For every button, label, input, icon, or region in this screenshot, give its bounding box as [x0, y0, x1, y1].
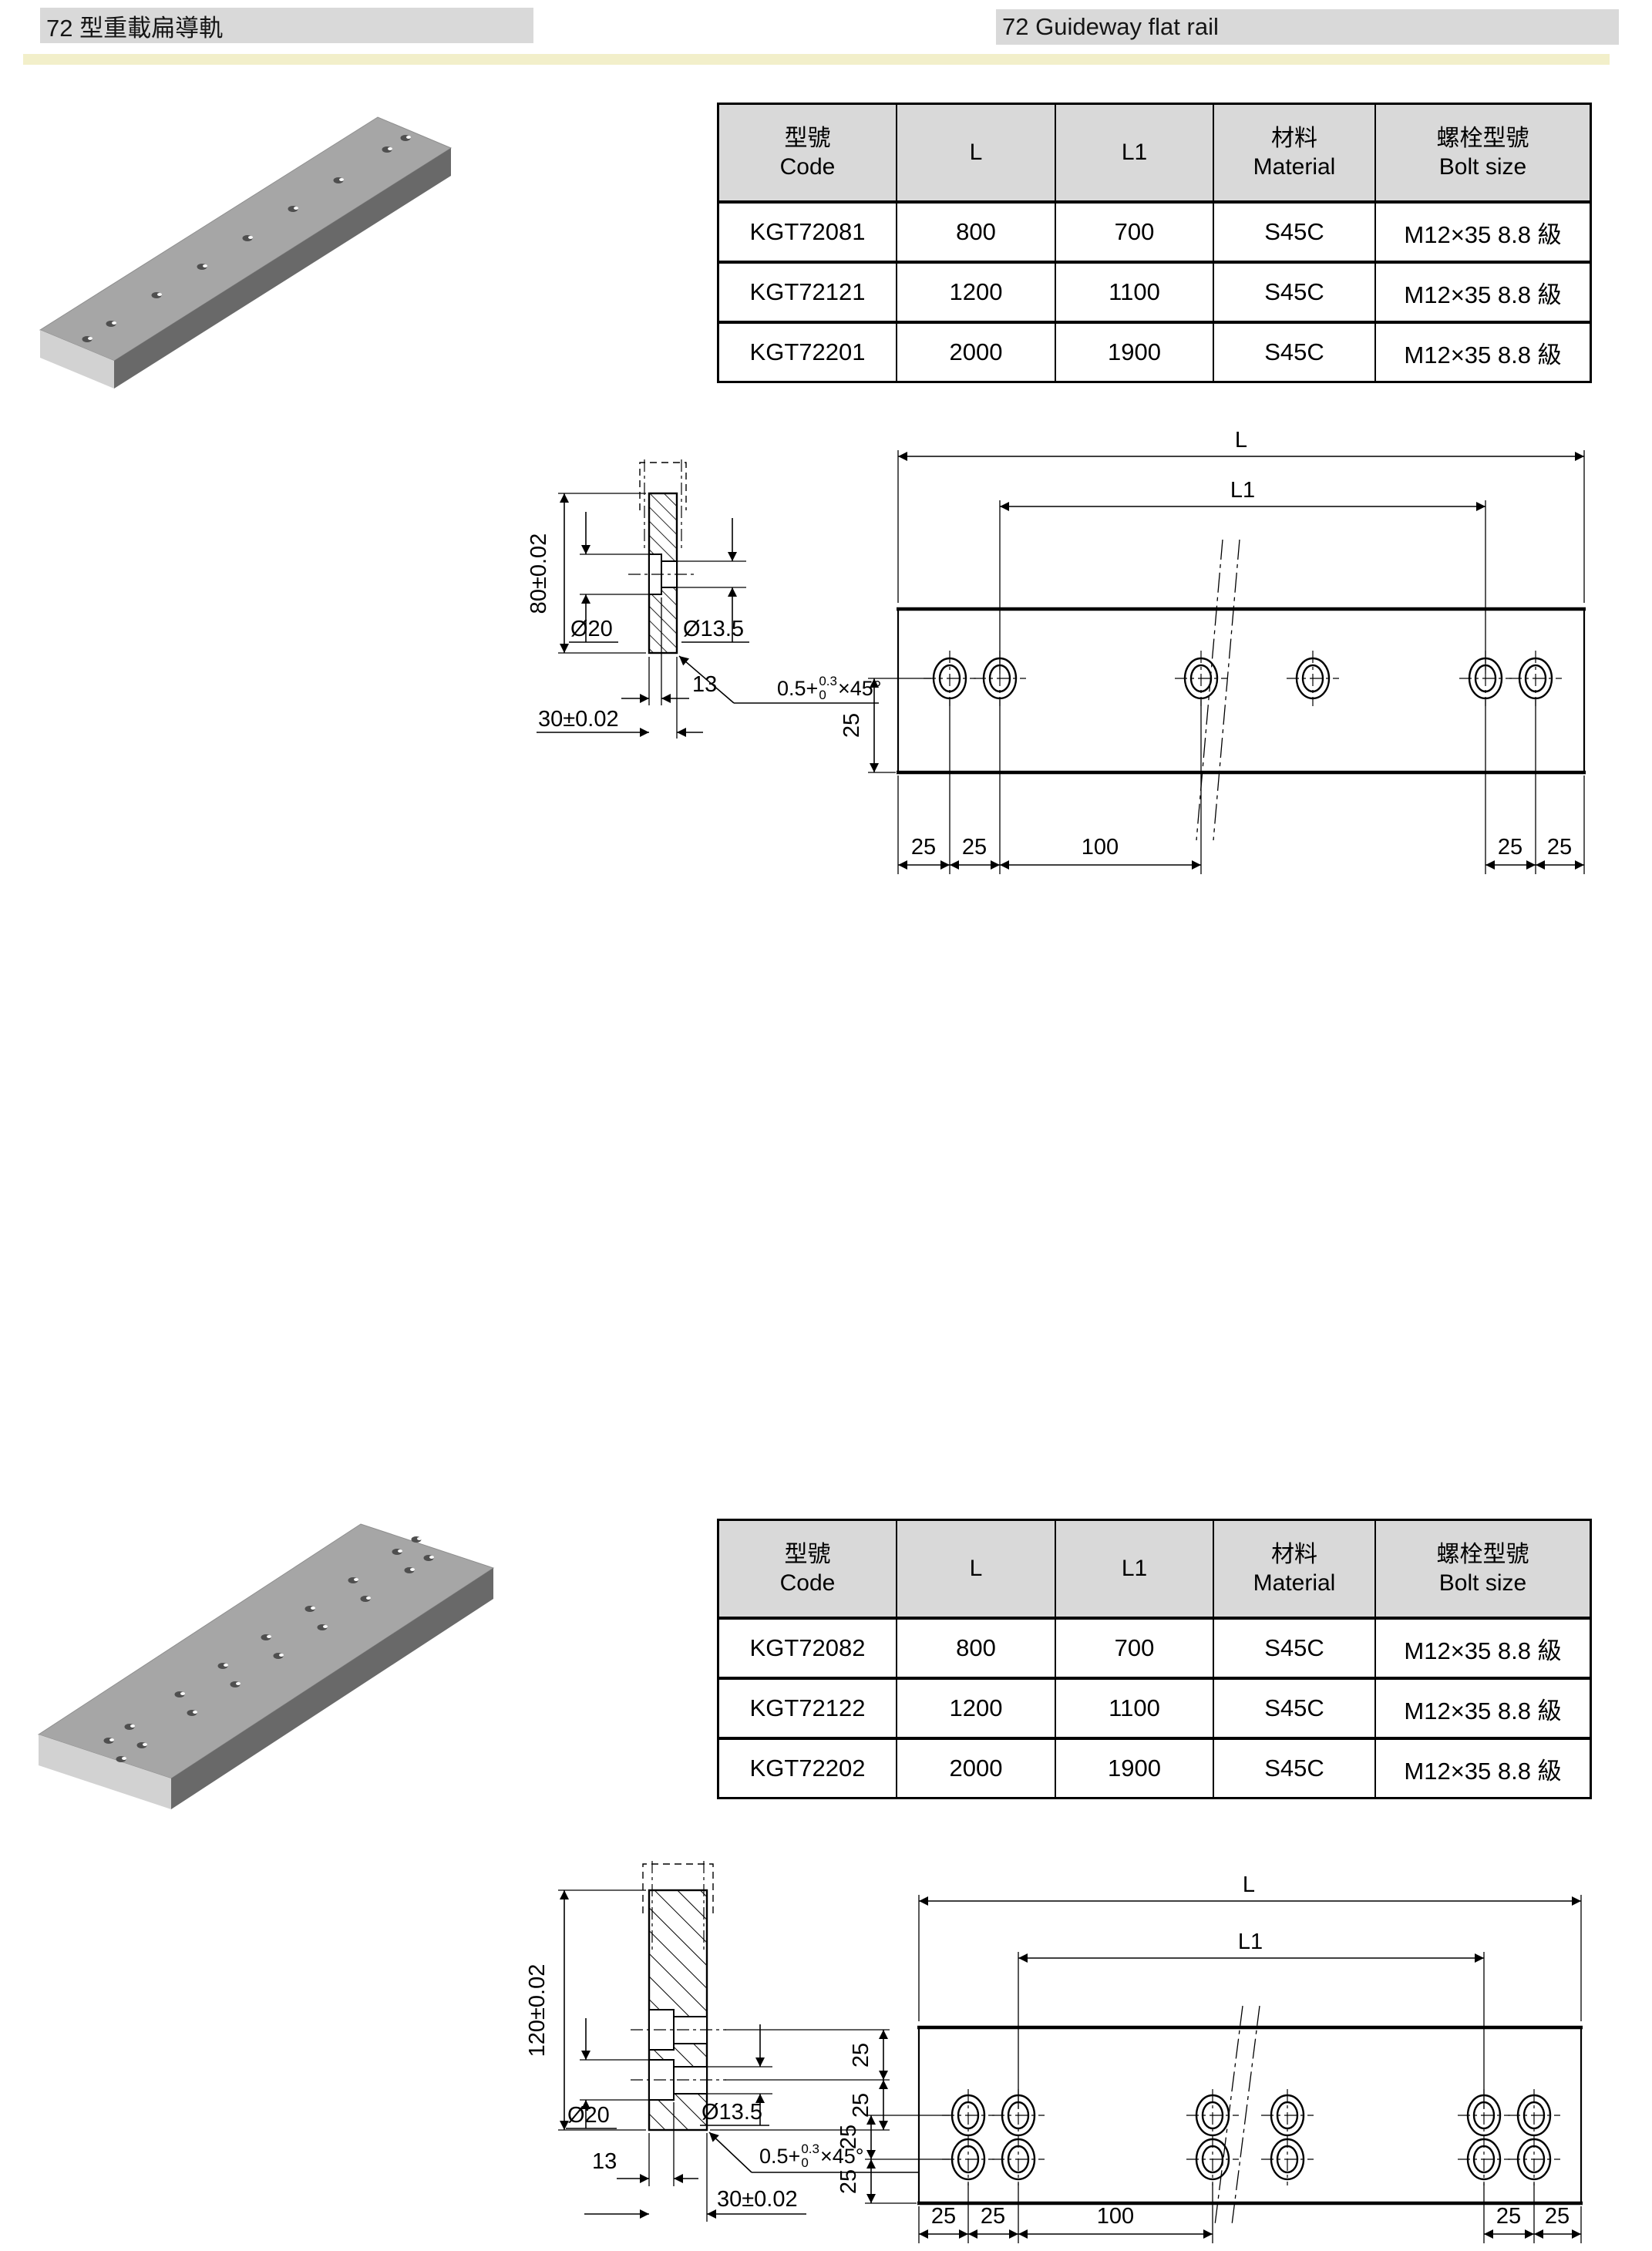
technical-drawing-1: 80±0.02 Ø20 Ø13.5 13 30±0.02 — [509, 416, 1650, 925]
dim-depth: 13 — [592, 2149, 617, 2174]
side-view-2: L L1 25 25 25 25 100 25 25 — [836, 1872, 1583, 2243]
cell-bolt: M12×35 8.8 級 — [1376, 1680, 1590, 1740]
page-title-zh-text: 72 型重載扁導軌 — [46, 8, 223, 43]
dim-width: 30±0.02 — [717, 2187, 798, 2212]
rail-3d-image-2 — [23, 1503, 501, 1819]
page-title-en: 72 Guideway flat rail — [996, 9, 1619, 45]
cell-bolt: M12×35 8.8 級 — [1376, 324, 1590, 381]
cell-bolt: M12×35 8.8 級 — [1376, 1740, 1590, 1797]
dim-height: 80±0.02 — [527, 533, 551, 614]
spec-table-2: 型號 Code L L1 材料 Material 螺栓型號 Bolt size … — [717, 1519, 1592, 1799]
cell-code: KGT72122 — [719, 1680, 897, 1740]
divider-band — [23, 54, 1610, 65]
cell-bolt: M12×35 8.8 級 — [1376, 1620, 1590, 1680]
cell-l: 2000 — [897, 1740, 1056, 1797]
cell-l: 800 — [897, 204, 1056, 264]
col-header-l: L — [897, 105, 1056, 204]
spec-table-1: 型號 Code L L1 材料 Material 螺栓型號 Bolt size … — [717, 103, 1592, 383]
cell-bolt: M12×35 8.8 級 — [1376, 204, 1590, 264]
chamfer-note-2: 0.5+ 0.30 ×45° — [759, 2143, 864, 2171]
cell-code: KGT72201 — [719, 324, 897, 381]
dim-L: L — [1243, 1872, 1255, 1897]
col-header-l: L — [897, 1521, 1056, 1620]
col-header-bolt: 螺栓型號 Bolt size — [1376, 105, 1590, 204]
col-header-l1: L1 — [1056, 1521, 1214, 1620]
dim-height: 120±0.02 — [525, 1964, 550, 2058]
col-header-bolt: 螺栓型號 Bolt size — [1376, 1521, 1590, 1620]
dim-25: 25 — [931, 2204, 956, 2229]
dim-25: 25 — [962, 835, 987, 860]
col-header-material: 材料 Material — [1214, 1521, 1376, 1620]
dim-width: 30±0.02 — [538, 707, 619, 732]
dim-25: 25 — [981, 2204, 1005, 2229]
cell-l1: 1900 — [1056, 324, 1214, 381]
dim-bore: Ø13.5 — [702, 2100, 762, 2125]
dim-100: 100 — [1097, 2204, 1134, 2229]
col-header-l1: L1 — [1056, 105, 1214, 204]
rail-3d-image-1 — [23, 77, 486, 416]
dim-100: 100 — [1082, 835, 1119, 860]
cell-material: S45C — [1214, 264, 1376, 324]
cell-material: S45C — [1214, 1620, 1376, 1680]
cell-l1: 1100 — [1056, 1680, 1214, 1740]
cell-code: KGT72121 — [719, 264, 897, 324]
cell-l1: 700 — [1056, 1620, 1214, 1680]
dim-v25b: 25 — [836, 2169, 861, 2194]
cell-code: KGT72081 — [719, 204, 897, 264]
dim-r25b: 25 — [849, 2093, 873, 2118]
cell-code: KGT72202 — [719, 1740, 897, 1797]
page-title-zh: 72 型重載扁導軌 — [40, 8, 533, 43]
dim-25: 25 — [1498, 835, 1522, 860]
catalog-page: 72 型重載扁導軌 72 Guideway flat rail 型號 Code … — [0, 0, 1652, 2251]
dim-25: 25 — [1547, 835, 1572, 860]
chamfer-note-1: 0.5+ 0.30 ×45° — [777, 675, 882, 703]
dim-counterbore: Ø20 — [567, 2103, 610, 2128]
dim-r25a: 25 — [849, 2043, 873, 2068]
side-view-1: L L1 25 25 25 100 25 25 — [839, 428, 1586, 874]
dim-depth: 13 — [692, 672, 717, 697]
cell-material: S45C — [1214, 1680, 1376, 1740]
cell-bolt: M12×35 8.8 級 — [1376, 264, 1590, 324]
cell-l: 800 — [897, 1620, 1056, 1680]
cell-material: S45C — [1214, 1740, 1376, 1797]
dim-bore: Ø13.5 — [683, 617, 744, 641]
page-title-en-text: 72 Guideway flat rail — [1002, 13, 1219, 41]
dim-v25: 25 — [839, 713, 864, 738]
cell-code: KGT72082 — [719, 1620, 897, 1680]
cell-l: 1200 — [897, 264, 1056, 324]
dim-25: 25 — [1496, 2204, 1521, 2229]
dim-L: L — [1235, 428, 1247, 453]
cell-l1: 1100 — [1056, 264, 1214, 324]
dim-L1: L1 — [1238, 1930, 1263, 1954]
col-header-code: 型號 Code — [719, 105, 897, 204]
dim-25: 25 — [1545, 2204, 1570, 2229]
col-header-material: 材料 Material — [1214, 105, 1376, 204]
cross-section-view-2: 120±0.02 Ø20 Ø13.5 13 30±0.02 — [525, 1861, 948, 2222]
cell-l: 1200 — [897, 1680, 1056, 1740]
cell-l: 2000 — [897, 324, 1056, 381]
col-header-code: 型號 Code — [719, 1521, 897, 1620]
cell-l1: 700 — [1056, 204, 1214, 264]
cell-l1: 1900 — [1056, 1740, 1214, 1797]
cell-material: S45C — [1214, 204, 1376, 264]
dim-counterbore: Ø20 — [570, 617, 613, 641]
dim-L1: L1 — [1230, 478, 1255, 503]
technical-drawing-2: 120±0.02 Ø20 Ø13.5 13 30±0.02 — [509, 1850, 1650, 2251]
dim-25: 25 — [911, 835, 936, 860]
cell-material: S45C — [1214, 324, 1376, 381]
